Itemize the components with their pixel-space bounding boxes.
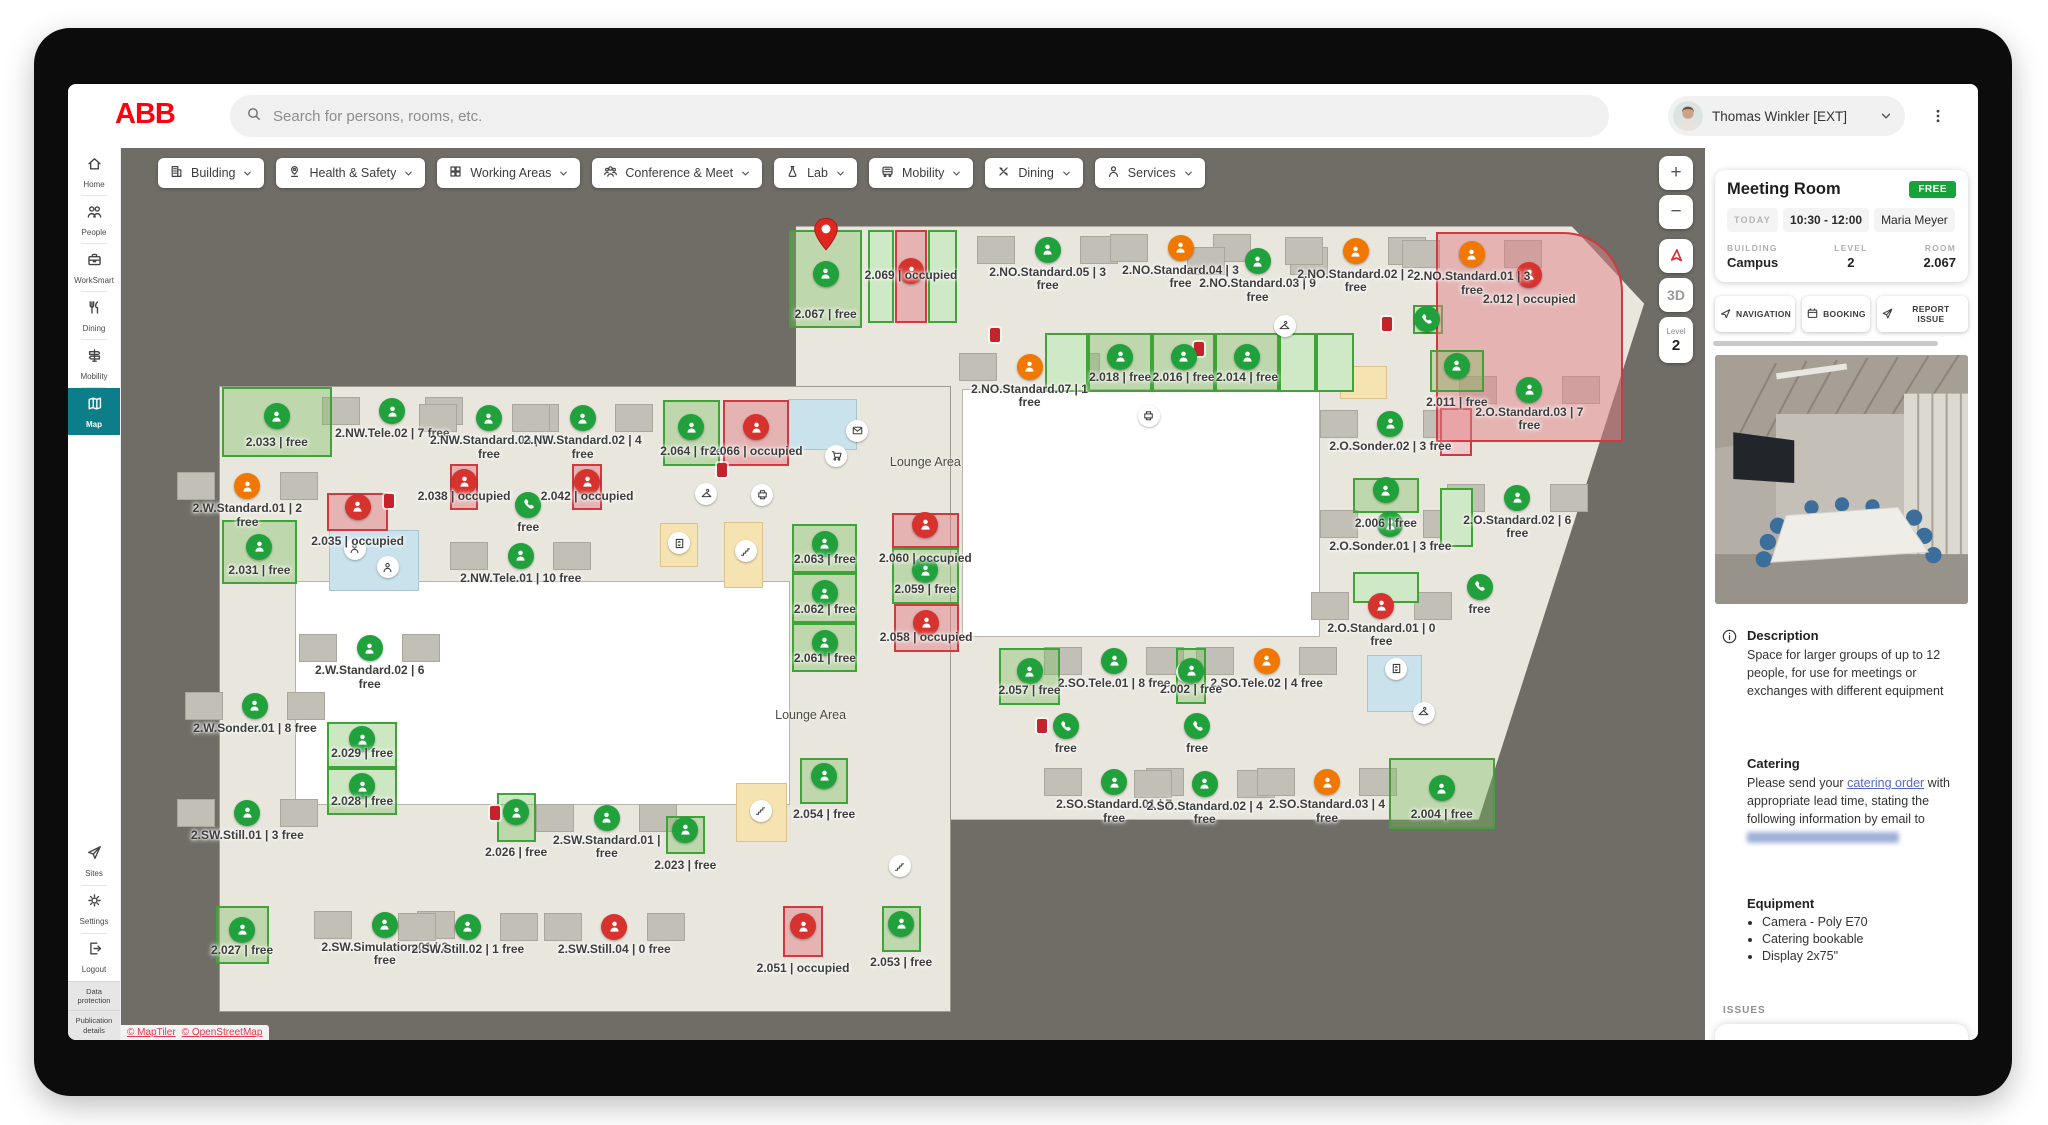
occupancy-icon-green[interactable]	[455, 914, 481, 940]
3d-toggle-button[interactable]: 3D	[1659, 278, 1693, 312]
info-icon	[1721, 628, 1738, 645]
fire-extinguisher-icon	[1382, 317, 1392, 331]
flask-icon	[785, 164, 800, 182]
floor-plan-map[interactable]: 2.NO.Standard.05 | 3 free2.NO.Standard.0…	[120, 148, 1705, 1040]
desk	[959, 353, 997, 381]
area-label-lounge-area: Lounge Area	[775, 708, 846, 722]
floor-plan: 2.NO.Standard.05 | 3 free2.NO.Standard.0…	[190, 148, 1700, 1040]
printer-icon	[751, 484, 773, 506]
occupancy-icon-red[interactable]	[790, 913, 816, 939]
desk	[177, 472, 215, 500]
occupancy-icon-green[interactable]	[1101, 769, 1127, 795]
occupancy-icon-red[interactable]	[1368, 593, 1394, 619]
filter-services[interactable]: Services	[1095, 158, 1205, 188]
occupancy-icon-red[interactable]	[743, 414, 769, 440]
desk	[1299, 647, 1337, 675]
desk	[544, 913, 582, 941]
desk	[615, 404, 653, 432]
filter-label: Conference & Meet	[625, 166, 733, 180]
attribution-link-maptiler[interactable]: © MapTiler	[127, 1027, 176, 1038]
filter-mobility[interactable]: Mobility	[869, 158, 973, 188]
filter-label: Mobility	[902, 166, 944, 180]
mail-icon	[846, 420, 868, 442]
redacted-email	[1747, 832, 1899, 843]
occupancy-icon-green[interactable]	[246, 534, 272, 560]
occupancy-icon-red[interactable]	[601, 914, 627, 940]
app-window: ABB Thomas Winkler [EXT] HomePeopleWorkS…	[68, 84, 1978, 1040]
issues-card: ISSUE DATE	[1715, 1024, 1968, 1040]
meta-label: ROOM	[1923, 243, 1956, 253]
occupancy-icon-green[interactable]	[372, 912, 398, 938]
person-icon	[344, 538, 366, 560]
occupancy-icon-green[interactable]	[1035, 237, 1061, 263]
sidebar-link-publication-details[interactable]: Publication details	[68, 1010, 120, 1040]
occupancy-icon-green[interactable]	[672, 817, 698, 843]
report-issue-button[interactable]: REPORT ISSUE	[1877, 296, 1968, 332]
attribution-link-openstreetmap[interactable]: © OpenStreetMap	[182, 1027, 263, 1038]
occupancy-icon-green[interactable]	[1444, 353, 1470, 379]
desk	[1320, 410, 1358, 438]
elevator-icon	[668, 532, 690, 554]
stairs-icon	[889, 855, 911, 877]
room-summary-card: Meeting Room FREE TODAY 10:30 - 12:00 Ma…	[1715, 170, 1968, 282]
map-zone-greenbox	[868, 230, 894, 323]
occupancy-icon-green[interactable]	[379, 398, 405, 424]
hanger-icon	[1413, 702, 1435, 724]
overflow-menu-button[interactable]	[1920, 98, 1956, 134]
occupancy-icon-green[interactable]	[1192, 771, 1218, 797]
occupancy-icon-green[interactable]	[1429, 775, 1455, 801]
fire-extinguisher-icon	[990, 328, 1000, 342]
issues-label: ISSUES	[1723, 1005, 1978, 1016]
sidebar-item-label: Settings	[80, 917, 109, 926]
level-value: 2	[1672, 336, 1680, 356]
room-photo	[1715, 355, 1968, 604]
sites-icon	[1881, 307, 1894, 322]
health-icon	[287, 164, 302, 182]
chevron-down-icon	[1879, 109, 1893, 123]
catering-section: Catering Please send your catering order…	[1721, 756, 1962, 846]
logout-icon	[86, 940, 103, 962]
desk	[185, 692, 223, 720]
sidebar-item-label: Mobility	[80, 372, 107, 381]
dining-icon	[86, 299, 103, 321]
occupancy-icon-orange[interactable]	[234, 473, 260, 499]
desk	[1402, 240, 1440, 268]
status-badge: FREE	[1909, 181, 1956, 198]
fire-extinguisher-icon	[717, 463, 727, 477]
sidebar-item-label: People	[82, 228, 107, 237]
booking-button[interactable]: BOOKING	[1802, 296, 1870, 332]
chevron-down-icon	[1061, 168, 1072, 179]
filter-health-safety[interactable]: Health & Safety	[276, 158, 425, 188]
stairs-icon	[735, 540, 757, 562]
sidebar-item-worksmart[interactable]: WorkSmart	[68, 244, 120, 291]
map-zone-greenbox	[1045, 333, 1089, 392]
sidebar-item-label: Dining	[83, 324, 106, 333]
zoom-in-button[interactable]: +	[1659, 156, 1693, 190]
map-zone-wc	[789, 400, 855, 449]
phone-booth-icon[interactable]	[1184, 713, 1210, 739]
chevron-down-icon	[951, 168, 962, 179]
occupancy-icon-orange[interactable]	[1168, 235, 1194, 261]
sidebar-item-mobility[interactable]: Mobility	[68, 340, 120, 387]
desk	[1257, 768, 1295, 796]
filter-label: Services	[1128, 166, 1176, 180]
occupancy-icon-green[interactable]	[1171, 344, 1197, 370]
desk	[177, 799, 215, 827]
desk	[419, 404, 457, 432]
area-label-lounge-area: Lounge Area	[890, 455, 961, 469]
calendar-icon	[1806, 307, 1819, 322]
sidebar-item-label: Logout	[82, 965, 106, 974]
occupancy-icon-red[interactable]	[574, 469, 600, 495]
meta-label: BUILDING	[1727, 243, 1778, 253]
desk	[314, 911, 352, 939]
map-filter-bar: BuildingHealth & SafetyWorking AreasConf…	[158, 158, 1205, 188]
map-zone-greenbox	[1316, 333, 1354, 392]
meta-value: Campus	[1727, 255, 1778, 270]
room-photo-visual	[1715, 355, 1968, 604]
occupancy-icon-red[interactable]	[1516, 262, 1542, 288]
desk	[1285, 237, 1323, 265]
map-zone-greenbox	[1279, 333, 1317, 392]
sidebar-item-label: Sites	[85, 869, 103, 878]
building-icon	[169, 164, 184, 182]
desk	[1550, 484, 1588, 512]
desk	[977, 236, 1015, 264]
user-menu[interactable]: Thomas Winkler [EXT]	[1668, 96, 1905, 136]
occupancy-icon-green[interactable]	[1107, 344, 1133, 370]
equipment-section: Equipment Camera - Poly E70Catering book…	[1721, 896, 1962, 963]
occupancy-icon-green[interactable]	[229, 917, 255, 943]
occupancy-icon-green[interactable]	[1373, 477, 1399, 503]
occupancy-icon-red[interactable]	[898, 258, 924, 284]
filter-dining[interactable]: Dining	[985, 158, 1082, 188]
meta-room: ROOM2.067	[1923, 243, 1956, 270]
description-section: Description Space for larger groups of u…	[1721, 628, 1962, 700]
stairs-icon	[750, 800, 772, 822]
occupancy-icon-green[interactable]	[1504, 485, 1530, 511]
filter-label: Health & Safety	[309, 166, 396, 180]
desk	[536, 804, 574, 832]
desk	[1110, 234, 1148, 262]
abb-logo: ABB	[115, 98, 175, 131]
sidebar-item-label: WorkSmart	[74, 276, 114, 285]
occupancy-icon-green[interactable]	[888, 911, 914, 937]
avatar	[1673, 101, 1703, 131]
map-zone-greenbox	[1440, 488, 1473, 547]
meta-label: LEVEL	[1834, 243, 1867, 253]
chevron-down-icon	[558, 168, 569, 179]
mobility-icon	[86, 347, 103, 369]
sidebar-item-dining[interactable]: Dining	[68, 292, 120, 339]
desk	[280, 472, 318, 500]
sidebar-item-label: Home	[83, 180, 104, 189]
occupancy-icon-green[interactable]	[349, 773, 375, 799]
elevator-icon	[1385, 658, 1407, 680]
sidebar-item-map[interactable]: Map	[68, 388, 120, 435]
occupancy-icon-green[interactable]	[503, 799, 529, 825]
home-icon	[86, 155, 103, 177]
occupancy-icon-green[interactable]	[570, 405, 596, 431]
topbar: ABB Thomas Winkler [EXT]	[68, 84, 1978, 148]
occupancy-icon-green[interactable]	[813, 261, 839, 287]
equipment-item: Display 2x75"	[1762, 949, 1962, 963]
level-label: Level	[1666, 328, 1685, 336]
schedule-time: 10:30 - 12:00	[1783, 208, 1869, 232]
filter-working-areas[interactable]: Working Areas	[437, 158, 580, 188]
navigation-button[interactable]: NAVIGATION	[1715, 296, 1795, 332]
map-icon	[86, 395, 103, 417]
filter-building[interactable]: Building	[158, 158, 264, 188]
room-title: Meeting Room	[1727, 180, 1841, 199]
meta-value: 2	[1834, 255, 1867, 270]
equipment-item: Camera - Poly E70	[1762, 915, 1962, 929]
meta-building: BUILDINGCampus	[1727, 243, 1778, 270]
description-title: Description	[1747, 628, 1962, 643]
occupancy-icon-green[interactable]	[1245, 248, 1271, 274]
sidebar-item-people[interactable]: People	[68, 196, 120, 243]
sidebar: HomePeopleWorkSmartDiningMobilityMap Sit…	[68, 148, 121, 1040]
group-icon	[603, 164, 618, 182]
occupancy-icon-green[interactable]	[1101, 648, 1127, 674]
person-icon	[377, 556, 399, 578]
catering-title: Catering	[1747, 756, 1962, 771]
occupancy-icon-orange[interactable]	[1314, 769, 1340, 795]
bus-icon	[880, 164, 895, 182]
cart-icon	[825, 445, 847, 467]
occupancy-icon-green[interactable]	[594, 805, 620, 831]
level-selector[interactable]: Level 2	[1659, 317, 1693, 363]
desk	[647, 913, 685, 941]
occupancy-icon-orange[interactable]	[1343, 238, 1369, 264]
occupancy-icon-green[interactable]	[476, 405, 502, 431]
filter-label: Dining	[1018, 166, 1053, 180]
occupancy-icon-red[interactable]	[912, 512, 938, 538]
occupancy-icon-green[interactable]	[242, 693, 268, 719]
occupancy-icon-green[interactable]	[812, 630, 838, 656]
schedule-person: Maria Meyer	[1874, 208, 1955, 232]
desk	[287, 692, 325, 720]
settings-icon	[86, 892, 103, 914]
worksmart-icon	[86, 251, 103, 273]
hanger-icon	[1274, 315, 1296, 337]
person-icon	[1106, 164, 1121, 182]
occupancy-icon-green[interactable]	[812, 580, 838, 606]
desk	[1320, 510, 1358, 538]
desk	[1044, 768, 1082, 796]
printer-icon	[1138, 405, 1160, 427]
occupancy-icon-green[interactable]	[234, 800, 260, 826]
cutlery-icon	[996, 164, 1011, 182]
catering-body: Please send your catering order with app…	[1747, 775, 1962, 846]
occupancy-icon-green[interactable]	[811, 763, 837, 789]
filter-conference-meet[interactable]: Conference & Meet	[592, 158, 762, 188]
occupancy-icon-green[interactable]	[812, 531, 838, 557]
equipment-title: Equipment	[1747, 896, 1962, 911]
zoom-out-button[interactable]: −	[1659, 195, 1693, 229]
desk	[299, 634, 337, 662]
desk	[1414, 592, 1452, 620]
occupancy-icon-red[interactable]	[451, 469, 477, 495]
chevron-down-icon	[740, 168, 751, 179]
occupancy-icon-green[interactable]	[912, 557, 938, 583]
occupancy-icon-green[interactable]	[1017, 658, 1043, 684]
occupancy-icon-orange[interactable]	[1459, 241, 1485, 267]
grid-icon	[448, 164, 463, 182]
sidebar-item-label: Map	[86, 420, 102, 429]
map-controls: + − 3D Level 2	[1659, 156, 1693, 363]
search-icon	[246, 106, 262, 127]
schedule-day: TODAY	[1727, 208, 1778, 232]
fire-extinguisher-icon	[490, 806, 500, 820]
equipment-item: Catering bookable	[1762, 932, 1962, 946]
room-details-panel: Meeting Room FREE TODAY 10:30 - 12:00 Ma…	[1705, 148, 1978, 1040]
occupancy-icon-green[interactable]	[264, 403, 290, 429]
occupancy-icon-green[interactable]	[357, 635, 383, 661]
occupancy-icon-green[interactable]	[349, 726, 375, 752]
chevron-down-icon	[1183, 168, 1194, 179]
phone-booth-icon[interactable]	[1053, 713, 1079, 739]
chevron-down-icon	[403, 168, 414, 179]
compass-button[interactable]	[1659, 239, 1693, 273]
occupancy-icon-red[interactable]	[345, 494, 371, 520]
desk	[500, 913, 538, 941]
people-icon	[86, 203, 103, 225]
fire-extinguisher-icon	[384, 494, 394, 508]
catering-order-link[interactable]: catering order	[1847, 776, 1924, 790]
occupancy-icon-green[interactable]	[678, 414, 704, 440]
phone-booth-icon[interactable]	[1467, 574, 1493, 600]
desk	[450, 542, 488, 570]
sidebar-spacer	[68, 435, 120, 838]
desk	[402, 634, 440, 662]
user-name: Thomas Winkler [EXT]	[1712, 109, 1870, 124]
chevron-down-icon	[242, 168, 253, 179]
occupancy-icon-green[interactable]	[1178, 658, 1204, 684]
meta-level: LEVEL2	[1834, 243, 1867, 270]
desk	[1311, 592, 1349, 620]
map-zone-wc	[330, 531, 418, 590]
filter-label: Lab	[807, 166, 828, 180]
device-bezel: ABB Thomas Winkler [EXT] HomePeopleWorkS…	[34, 28, 2012, 1096]
occupancy-icon-orange[interactable]	[1254, 648, 1280, 674]
occupancy-icon-green[interactable]	[508, 543, 534, 569]
occupancy-icon-red[interactable]	[913, 610, 939, 636]
sidebar-item-sites[interactable]: Sites	[68, 838, 120, 885]
occupancy-icon-green[interactable]	[1516, 377, 1542, 403]
phone-booth-icon[interactable]	[515, 492, 541, 518]
desk	[553, 542, 591, 570]
map-zone-greenbox	[928, 230, 957, 323]
meta-value: 2.067	[1923, 255, 1956, 270]
filter-lab[interactable]: Lab	[774, 158, 857, 188]
occupancy-icon-green[interactable]	[1377, 411, 1403, 437]
location-pin-icon	[813, 217, 839, 256]
nav-icon	[1719, 307, 1732, 322]
search-input[interactable]	[271, 107, 1593, 126]
desk	[280, 799, 318, 827]
fire-extinguisher-icon	[1037, 719, 1047, 733]
occupancy-icon-green[interactable]	[1377, 511, 1403, 537]
sidebar-item-settings[interactable]: Settings	[68, 886, 120, 933]
occupancy-icon-orange[interactable]	[1017, 354, 1043, 380]
phone-booth-icon[interactable]	[1414, 306, 1440, 332]
description-body: Space for larger groups of up to 12 peop…	[1747, 647, 1962, 700]
filter-label: Building	[191, 166, 235, 180]
sidebar-item-logout[interactable]: Logout	[68, 934, 120, 981]
filter-label: Working Areas	[470, 166, 551, 180]
desk	[398, 913, 436, 941]
sidebar-link-data-protection[interactable]: Data protection	[68, 981, 120, 1011]
desk	[1134, 770, 1172, 798]
panel-scrollbar[interactable]	[1713, 341, 1938, 346]
map-attribution: © MapTiler© OpenStreetMap	[120, 1025, 269, 1040]
sidebar-item-home[interactable]: Home	[68, 148, 120, 195]
desk	[512, 404, 550, 432]
search-bar[interactable]	[230, 95, 1609, 137]
hanger-icon	[695, 483, 717, 505]
chevron-down-icon	[835, 168, 846, 179]
occupancy-icon-green[interactable]	[1234, 344, 1260, 370]
map-zone-court	[963, 390, 1319, 636]
sites-icon	[86, 844, 103, 866]
